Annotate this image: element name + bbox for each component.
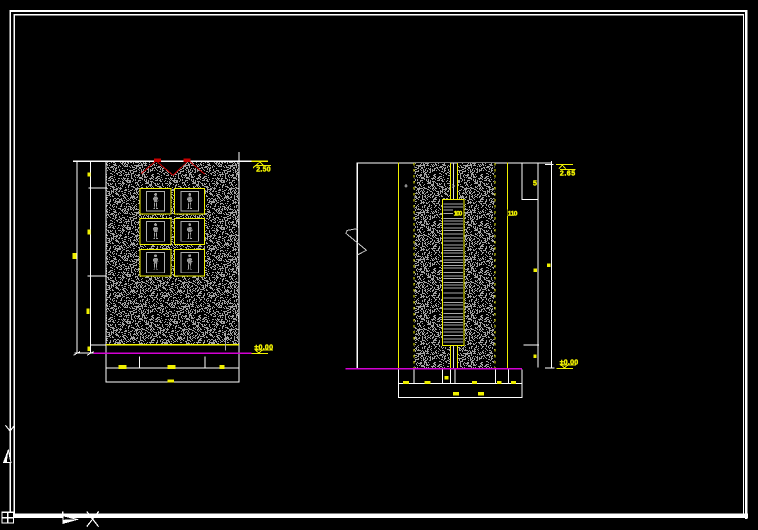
svg-text:±0.00: ±0.00: [254, 345, 273, 352]
svg-text:2.50: 2.50: [256, 166, 271, 173]
svg-text:2.65: 2.65: [560, 170, 575, 177]
svg-text:5: 5: [533, 181, 537, 188]
svg-text:110: 110: [508, 210, 518, 217]
svg-text:100: 100: [454, 210, 463, 217]
